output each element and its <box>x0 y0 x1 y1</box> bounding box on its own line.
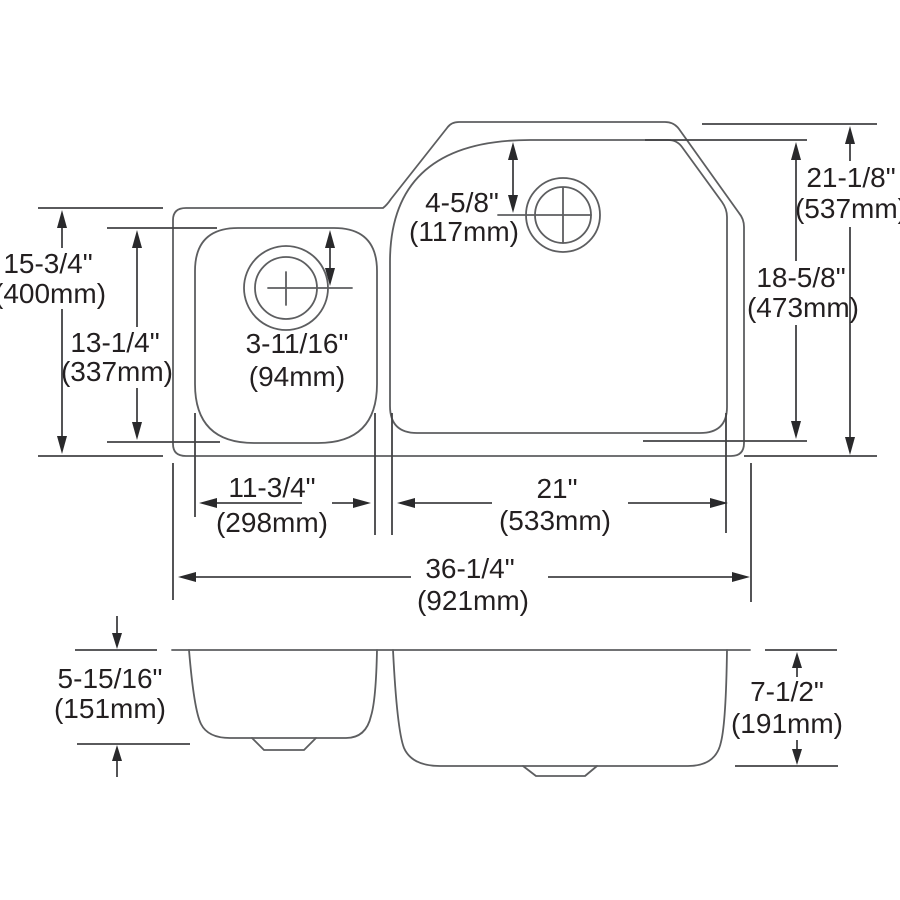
arrow-down-large-depth <box>792 749 802 765</box>
arrow-up-right-overall <box>845 126 855 144</box>
large-bowl-drain-boss <box>523 766 597 776</box>
arrow-up-large-drain <box>508 142 518 160</box>
label-large-bowl-width-mm: (533mm) <box>499 505 611 536</box>
arrow-up-left-overall <box>57 210 67 228</box>
arrow-down-left-bowl <box>132 422 142 440</box>
top-view <box>173 122 744 456</box>
dimension-labels: 15-3/4" (400mm) 13-1/4" (337mm) 3-11/16"… <box>0 162 900 739</box>
front-view-dimension-lines <box>75 616 838 777</box>
label-small-drain-mm: (94mm) <box>249 361 345 392</box>
front-view <box>172 650 750 776</box>
label-small-bowl-depth-mm: (151mm) <box>54 693 166 724</box>
label-left-overall-mm: (400mm) <box>0 278 106 309</box>
arrow-up-small-depth <box>112 745 122 761</box>
label-right-bowl-in: 18-5/8" <box>756 262 845 293</box>
arrow-down-left-overall <box>57 436 67 454</box>
arrow-right-small-bowl-width <box>353 498 371 508</box>
label-left-bowl-mm: (337mm) <box>61 356 173 387</box>
label-left-overall-in: 15-3/4" <box>3 248 92 279</box>
label-overall-width-in: 36-1/4" <box>425 553 514 584</box>
label-large-drain-in: 4-5/8" <box>425 187 499 218</box>
diagram-canvas: 15-3/4" (400mm) 13-1/4" (337mm) 3-11/16"… <box>0 0 900 900</box>
arrow-left-large-bowl-width <box>397 498 415 508</box>
arrow-up-right-bowl <box>791 142 801 160</box>
large-bowl-profile <box>393 650 727 766</box>
label-right-bowl-mm: (473mm) <box>747 292 859 323</box>
label-small-bowl-width-mm: (298mm) <box>216 507 328 538</box>
label-left-bowl-in: 13-1/4" <box>70 327 159 358</box>
label-overall-width-mm: (921mm) <box>417 585 529 616</box>
label-small-bowl-width-in: 11-3/4" <box>228 472 315 503</box>
arrow-down-right-overall <box>845 437 855 455</box>
arrow-down-large-drain <box>508 195 518 213</box>
small-bowl-drain-boss <box>252 738 316 750</box>
arrow-up-left-bowl <box>132 230 142 248</box>
label-small-drain-in: 3-11/16" <box>246 328 349 359</box>
label-small-bowl-depth-in: 5-15/16" <box>58 663 163 694</box>
label-large-bowl-depth-in: 7-1/2" <box>750 676 824 707</box>
label-large-drain-mm: (117mm) <box>409 216 519 247</box>
arrow-down-small-depth <box>112 633 122 649</box>
label-large-bowl-width-in: 21" <box>536 473 577 504</box>
arrow-up-large-depth <box>792 652 802 668</box>
small-bowl-profile <box>189 650 377 738</box>
arrow-up-small-drain <box>325 230 335 248</box>
arrow-down-right-bowl <box>791 421 801 439</box>
sink-spec-diagram: 15-3/4" (400mm) 13-1/4" (337mm) 3-11/16"… <box>0 0 900 900</box>
arrow-right-overall-width <box>732 572 750 582</box>
sink-outer-outline <box>173 122 744 456</box>
arrow-left-small-bowl-width <box>199 498 217 508</box>
label-right-overall-mm: (537mm) <box>795 193 900 224</box>
large-bowl-outline <box>390 140 727 433</box>
label-right-overall-in: 21-1/8" <box>806 162 895 193</box>
arrow-left-overall-width <box>178 572 196 582</box>
label-large-bowl-depth-mm: (191mm) <box>731 708 843 739</box>
